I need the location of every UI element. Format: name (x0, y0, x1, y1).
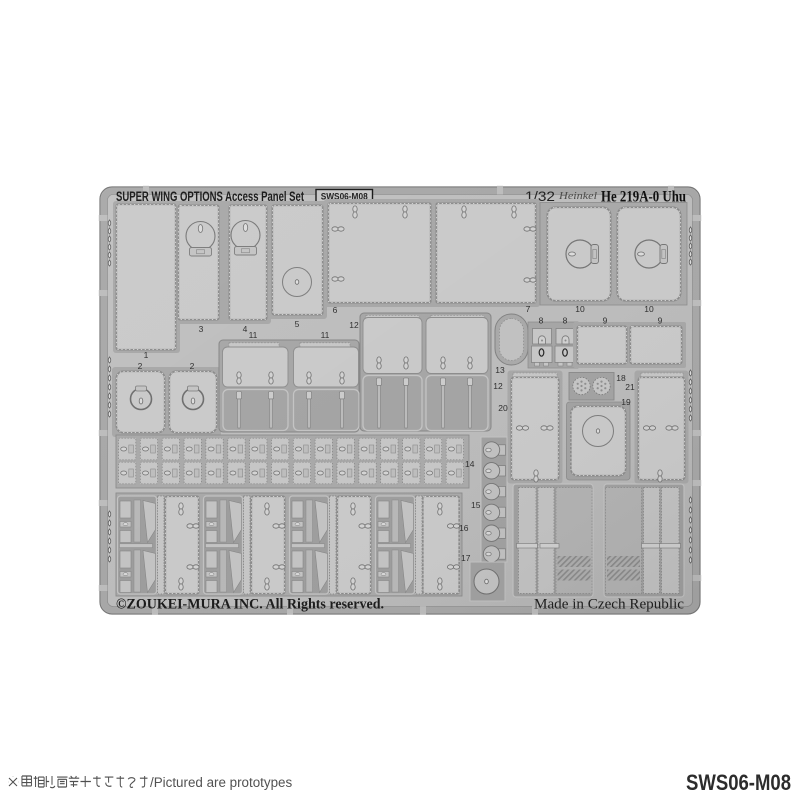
svg-text:/Pictured are prototypes: /Pictured are prototypes (150, 775, 292, 790)
svg-text:SWS06-M08: SWS06-M08 (686, 770, 791, 795)
